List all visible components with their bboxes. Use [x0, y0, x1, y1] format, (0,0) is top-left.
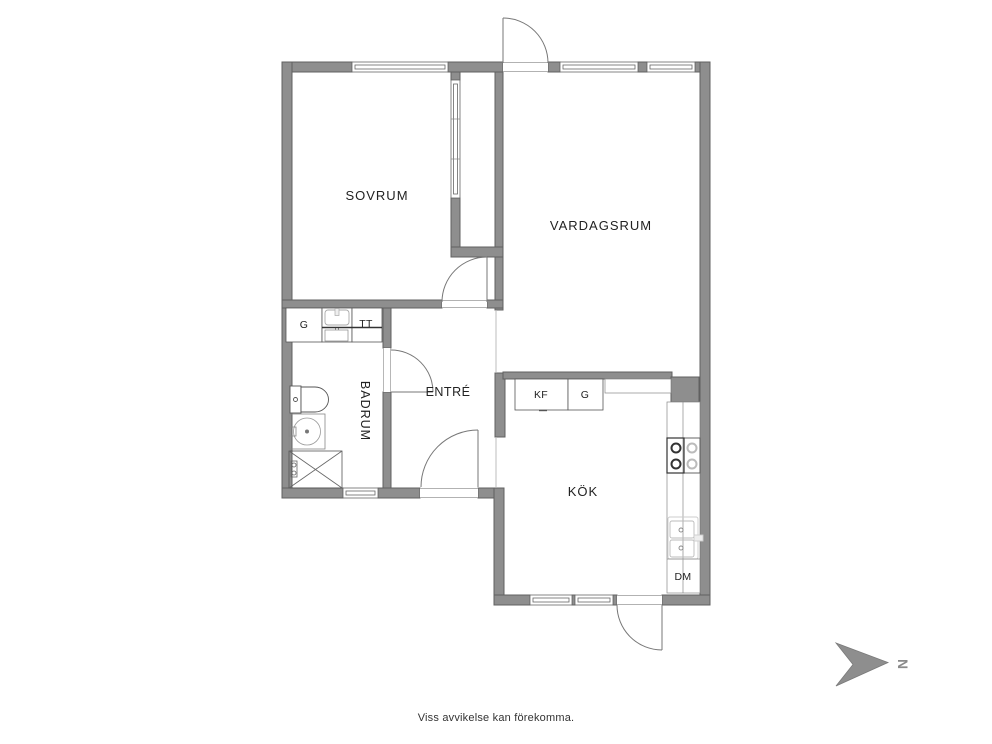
fixture-label-bathroom-wardrobe: G — [300, 319, 308, 331]
room-label-living-room: VARDAGSRUM — [550, 218, 652, 233]
glass-partition — [451, 80, 460, 198]
fixture-label-kitchen-wardrobe: G — [581, 389, 589, 401]
door-swings — [391, 18, 662, 650]
shower-icon — [289, 451, 342, 488]
toilet-icon — [290, 386, 329, 413]
footer-disclaimer: Viss avvikelse kan förekomma. — [418, 712, 575, 724]
counter-right — [667, 402, 700, 593]
north-label: N — [895, 659, 911, 669]
room-label-bathroom: BADRUM — [358, 381, 372, 441]
floorplan-page: SOVRUM VARDAGSRUM KÖK ENTRÉ BADRUM G TT … — [0, 0, 992, 744]
kitchen-fixtures — [515, 379, 703, 593]
north-arrow-icon — [836, 643, 888, 686]
north-arrow: N — [836, 643, 911, 686]
fixture-label-dryer: TT — [359, 318, 373, 330]
room-label-kitchen: KÖK — [568, 484, 598, 499]
room-label-entrance: ENTRÉ — [426, 384, 471, 399]
windows — [343, 62, 695, 605]
counter-top — [605, 379, 671, 393]
round-sink-icon — [289, 414, 325, 449]
room-label-bedroom: SOVRUM — [345, 188, 408, 203]
floorplan-canvas: SOVRUM VARDAGSRUM KÖK ENTRÉ BADRUM G TT … — [0, 0, 992, 744]
fixture-label-dishwasher: DM — [675, 571, 692, 583]
door-openings — [383, 62, 662, 605]
fixture-label-fridge-freezer: KF — [534, 389, 548, 401]
